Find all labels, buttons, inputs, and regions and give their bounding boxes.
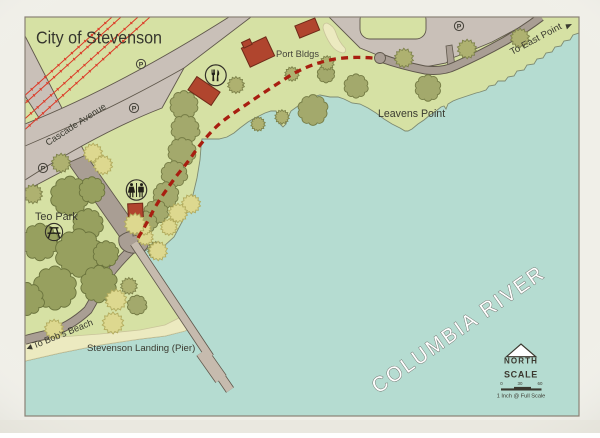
svg-text:Stevenson Landing (Pier): Stevenson Landing (Pier) bbox=[87, 343, 195, 354]
svg-text:NORTH: NORTH bbox=[504, 357, 538, 366]
svg-text:Teo Park: Teo Park bbox=[35, 211, 78, 223]
svg-text:P: P bbox=[132, 105, 137, 112]
svg-text:1 Inch @ Full Scale: 1 Inch @ Full Scale bbox=[497, 393, 546, 399]
svg-text:SCALE: SCALE bbox=[504, 370, 538, 380]
svg-text:60: 60 bbox=[538, 381, 543, 386]
svg-text:P: P bbox=[41, 165, 46, 172]
svg-text:P: P bbox=[139, 61, 144, 68]
svg-text:30: 30 bbox=[518, 381, 523, 386]
svg-text:P: P bbox=[457, 23, 462, 30]
svg-text:Port Bldgs: Port Bldgs bbox=[276, 49, 319, 60]
svg-text:Leavens Point: Leavens Point bbox=[378, 108, 445, 120]
svg-text:City of Stevenson: City of Stevenson bbox=[36, 28, 162, 48]
